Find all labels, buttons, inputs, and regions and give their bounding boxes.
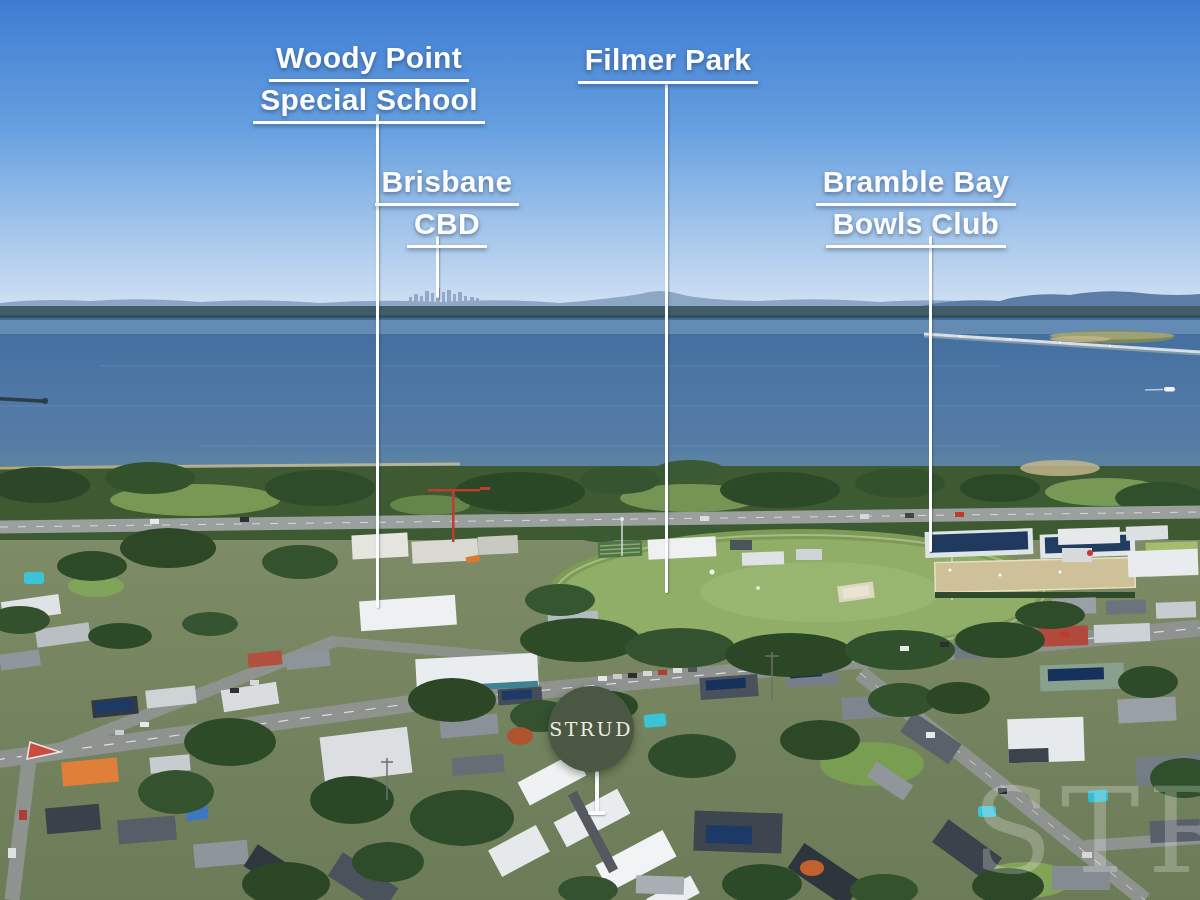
far-shoreline [0,306,1200,319]
label-line: Bowls Club [826,206,1006,248]
pointer-line-bramble-bay [929,236,932,552]
sand-island [1050,331,1174,344]
strud-logo-text: STRUD [549,718,633,740]
label-line: Filmer Park [578,42,759,84]
strud-pointer-cap [588,811,606,815]
pointer-line-filmer-park [665,84,668,593]
label-line: Brisbane [375,164,520,206]
strud-pointer-stem [595,771,599,813]
label-line: CBD [407,206,487,248]
label-line: Woody Point [269,40,469,82]
label-line: Special School [253,82,485,124]
strud-logo-badge: STRUD [548,686,634,772]
aerial-photo: Woody Point Special School Filmer Park B… [0,0,1200,900]
label-brisbane-cbd: Brisbane CBD [317,164,577,248]
label-line: Bramble Bay [816,164,1017,206]
label-bramble-bay-bowls-club: Bramble Bay Bowls Club [786,164,1046,248]
label-woody-point-special-school: Woody Point Special School [239,40,499,124]
label-filmer-park: Filmer Park [538,42,798,84]
